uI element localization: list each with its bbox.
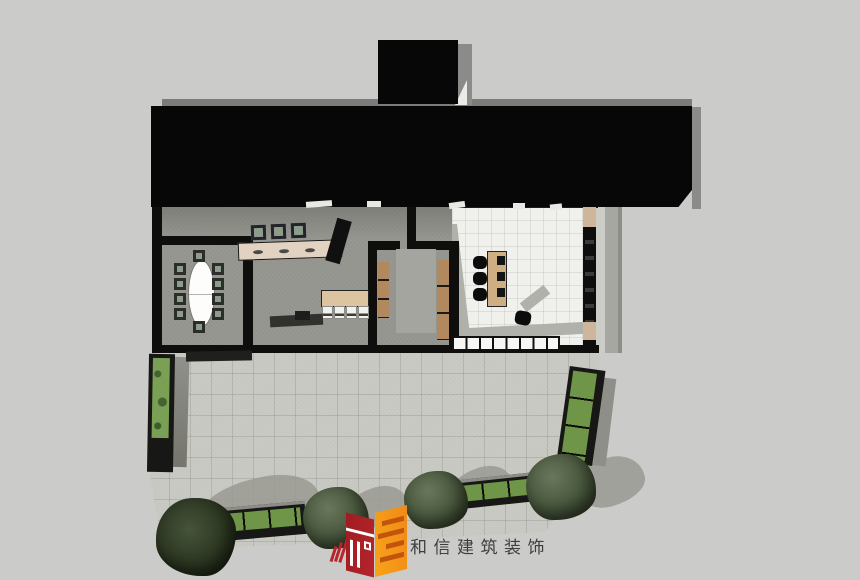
door-opening-mark	[513, 203, 525, 209]
logo-pattern	[386, 540, 404, 549]
hexin-cube-logo	[330, 506, 408, 576]
conference-chair	[193, 250, 205, 262]
desk-monitor	[497, 256, 505, 265]
roof-upper-block	[378, 40, 458, 104]
bench-item	[295, 311, 310, 320]
conference-chair	[174, 263, 186, 275]
conference-chair	[174, 308, 186, 320]
hedge-planter-left	[147, 354, 175, 472]
office-chair	[473, 256, 487, 269]
corridor-wall-stub	[407, 202, 416, 252]
brand-name: 和信建筑装饰	[410, 533, 551, 558]
dining-chair	[334, 306, 345, 319]
corridor-wall-right	[449, 241, 459, 348]
planter-right-plants	[561, 370, 597, 460]
roof-main	[151, 106, 692, 207]
office-corner-post-bottom	[583, 322, 596, 340]
conference-table-seam	[189, 294, 214, 295]
logo-pattern	[380, 552, 404, 563]
dining-chair	[358, 306, 369, 319]
corridor-floor-patch	[396, 249, 436, 333]
roof-right-shadow	[692, 107, 701, 209]
office-chair	[473, 272, 487, 285]
conference-chair	[193, 321, 205, 333]
counter-dish	[305, 248, 315, 252]
corridor-wood-panel-right	[437, 260, 449, 340]
logo-pattern	[364, 541, 371, 551]
hedge-green	[152, 358, 170, 438]
desk-monitor	[497, 288, 505, 297]
dining-chair	[346, 306, 357, 319]
conference-table	[188, 260, 215, 327]
conference-chair	[174, 293, 186, 305]
corridor-wall-left	[368, 241, 377, 348]
logo-pattern	[382, 516, 404, 526]
dining-table	[321, 290, 369, 307]
office-window-panes	[585, 228, 594, 322]
logo-pattern	[357, 541, 360, 568]
conference-chair	[212, 263, 224, 275]
conference-chair	[174, 278, 186, 290]
conference-chair	[212, 278, 224, 290]
bar-stool	[291, 223, 307, 239]
office-desk	[487, 251, 507, 307]
bar-stool	[271, 224, 287, 240]
desk-monitor	[497, 272, 505, 281]
tree	[404, 471, 468, 529]
rendering-canvas: 和信建筑装饰	[0, 0, 860, 580]
counter-dish	[253, 250, 263, 254]
office-corner-post-top	[583, 207, 596, 227]
office-chair	[473, 288, 487, 301]
counter-dish	[279, 249, 289, 253]
door-opening-mark	[550, 203, 563, 210]
bar-stool	[251, 225, 267, 241]
wall-left-outer	[152, 196, 162, 353]
conference-chair	[212, 308, 224, 320]
cabinet-row	[452, 336, 560, 351]
tree	[156, 498, 236, 576]
tree	[526, 454, 596, 520]
conference-chair	[212, 293, 224, 305]
door-opening-mark	[367, 201, 381, 207]
side-chair	[514, 310, 532, 327]
dining-chair	[322, 306, 333, 319]
corridor-wood-panel-left	[378, 262, 389, 318]
logo-pattern	[378, 528, 404, 539]
logo-pattern	[350, 540, 353, 567]
logo-pattern	[346, 528, 374, 538]
threshold-shadow	[186, 350, 252, 361]
logo-orange-face-icon	[375, 505, 407, 577]
exterior-right-wall	[596, 206, 622, 353]
logo-red-face-icon	[346, 513, 374, 578]
